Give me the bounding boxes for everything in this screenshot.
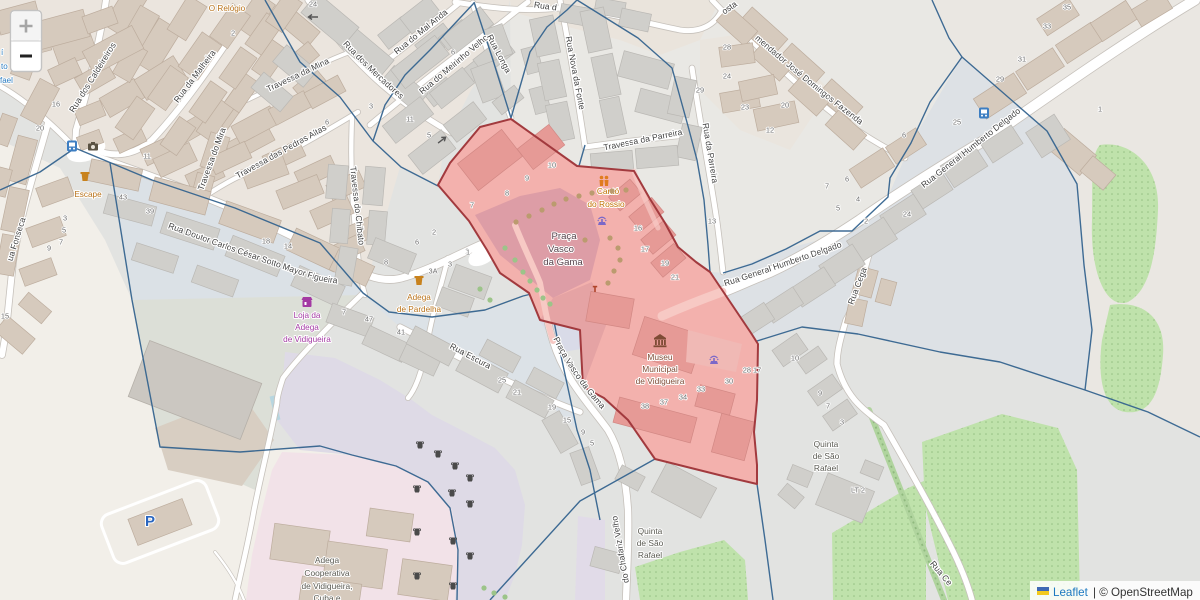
svg-text:to: to — [1, 62, 8, 71]
svg-text:20: 20 — [781, 101, 789, 110]
svg-text:9: 9 — [47, 244, 51, 253]
svg-text:LT 2: LT 2 — [851, 486, 865, 495]
svg-text:6: 6 — [902, 131, 906, 140]
svg-text:24: 24 — [903, 210, 911, 219]
svg-text:Quinta: Quinta — [638, 526, 663, 536]
svg-text:29: 29 — [696, 86, 704, 95]
svg-text:5: 5 — [62, 226, 66, 235]
svg-text:de Vidigueira: de Vidigueira — [283, 335, 331, 344]
svg-text:10: 10 — [791, 354, 799, 363]
svg-text:38: 38 — [641, 402, 649, 411]
svg-text:6: 6 — [325, 118, 329, 127]
svg-text:37: 37 — [660, 398, 668, 407]
svg-text:17: 17 — [641, 245, 649, 254]
svg-text:Praça: Praça — [551, 231, 577, 242]
svg-text:| © OpenStreetMap: | © OpenStreetMap — [1093, 586, 1193, 599]
svg-text:7: 7 — [470, 201, 474, 210]
svg-text:19: 19 — [661, 259, 669, 268]
svg-text:20: 20 — [36, 124, 44, 133]
svg-text:34: 34 — [679, 393, 687, 402]
svg-text:3: 3 — [369, 102, 373, 111]
svg-text:3A: 3A — [428, 267, 437, 276]
svg-text:11: 11 — [406, 115, 414, 124]
svg-text:de Vidigueira: de Vidigueira — [636, 376, 685, 386]
svg-text:Cooperativa: Cooperativa — [304, 568, 350, 578]
svg-text:24: 24 — [309, 0, 317, 9]
svg-text:9: 9 — [818, 389, 822, 398]
svg-text:29: 29 — [996, 75, 1004, 84]
svg-text:1: 1 — [466, 248, 470, 257]
svg-text:16: 16 — [52, 100, 60, 109]
svg-text:14: 14 — [284, 242, 292, 251]
svg-text:6: 6 — [415, 238, 419, 247]
svg-text:28: 28 — [723, 43, 731, 52]
svg-text:43: 43 — [119, 193, 127, 202]
svg-text:15: 15 — [563, 416, 571, 425]
svg-text:19: 19 — [548, 403, 556, 412]
svg-text:10: 10 — [548, 161, 556, 170]
svg-text:do Rossio: do Rossio — [587, 199, 625, 209]
svg-text:Adega: Adega — [295, 323, 319, 332]
svg-text:33: 33 — [1043, 22, 1051, 31]
svg-text:de Vidigueira,: de Vidigueira, — [301, 581, 352, 591]
svg-text:da Gama: da Gama — [543, 257, 583, 268]
svg-text:33: 33 — [697, 385, 705, 394]
svg-text:Vasco: Vasco — [548, 244, 574, 255]
svg-text:12: 12 — [766, 126, 774, 135]
svg-text:25: 25 — [953, 118, 961, 127]
svg-text:2: 2 — [231, 29, 235, 38]
svg-text:18: 18 — [262, 237, 270, 246]
svg-text:Adega: Adega — [315, 555, 340, 565]
svg-text:8: 8 — [505, 189, 509, 198]
svg-text:Loja da: Loja da — [294, 311, 321, 320]
svg-text:7: 7 — [825, 182, 829, 191]
svg-text:O Relógio: O Relógio — [209, 4, 246, 13]
svg-text:2: 2 — [864, 217, 868, 226]
svg-text:23: 23 — [741, 103, 749, 112]
svg-text:16: 16 — [634, 224, 642, 233]
svg-text:1: 1 — [1098, 105, 1102, 114]
svg-text:3: 3 — [448, 260, 452, 269]
svg-text:41: 41 — [397, 328, 405, 337]
svg-text:7: 7 — [342, 308, 346, 317]
svg-text:9: 9 — [581, 428, 585, 437]
svg-text:Museu: Museu — [647, 352, 672, 362]
svg-text:30: 30 — [725, 377, 733, 386]
svg-text:Rafael: Rafael — [638, 550, 662, 560]
svg-text:Cuba e: Cuba e — [313, 593, 340, 600]
svg-text:31: 31 — [1018, 55, 1026, 64]
svg-text:7: 7 — [826, 402, 830, 411]
svg-text:6: 6 — [451, 48, 455, 57]
svg-text:35: 35 — [1063, 3, 1071, 12]
svg-text:5: 5 — [590, 439, 594, 448]
svg-text:24: 24 — [723, 72, 731, 81]
svg-text:5: 5 — [836, 204, 840, 213]
svg-text:de São: de São — [813, 451, 840, 461]
svg-text:Escape: Escape — [74, 190, 102, 199]
svg-text:de Pardelha: de Pardelha — [397, 305, 442, 314]
svg-text:Cantó: Cantó — [597, 186, 620, 196]
svg-text:Adega: Adega — [407, 293, 431, 302]
svg-text:11: 11 — [143, 152, 151, 161]
svg-text:Municipal: Municipal — [642, 364, 678, 374]
svg-text:21: 21 — [671, 273, 679, 282]
svg-text:7: 7 — [59, 238, 63, 247]
svg-text:P: P — [145, 513, 155, 530]
svg-text:25: 25 — [498, 376, 506, 385]
svg-text:2: 2 — [432, 228, 436, 237]
svg-text:39: 39 — [146, 207, 154, 216]
svg-text:9: 9 — [525, 174, 529, 183]
svg-text:8: 8 — [384, 258, 388, 267]
svg-text:5: 5 — [427, 131, 431, 140]
svg-text:de São: de São — [637, 538, 664, 548]
svg-text:21: 21 — [513, 388, 521, 397]
svg-text:47: 47 — [365, 315, 373, 324]
svg-text:Leaflet: Leaflet — [1053, 586, 1089, 599]
svg-text:Quinta: Quinta — [814, 439, 839, 449]
svg-text:15: 15 — [1, 312, 9, 321]
svg-text:6: 6 — [845, 175, 849, 184]
svg-text:4: 4 — [856, 195, 860, 204]
svg-text:fael: fael — [0, 76, 13, 85]
svg-text:3: 3 — [63, 214, 67, 223]
svg-text:Rafael: Rafael — [814, 463, 838, 473]
svg-text:13: 13 — [708, 217, 716, 226]
svg-text:28 17: 28 17 — [743, 366, 762, 375]
svg-text:3: 3 — [840, 418, 844, 427]
